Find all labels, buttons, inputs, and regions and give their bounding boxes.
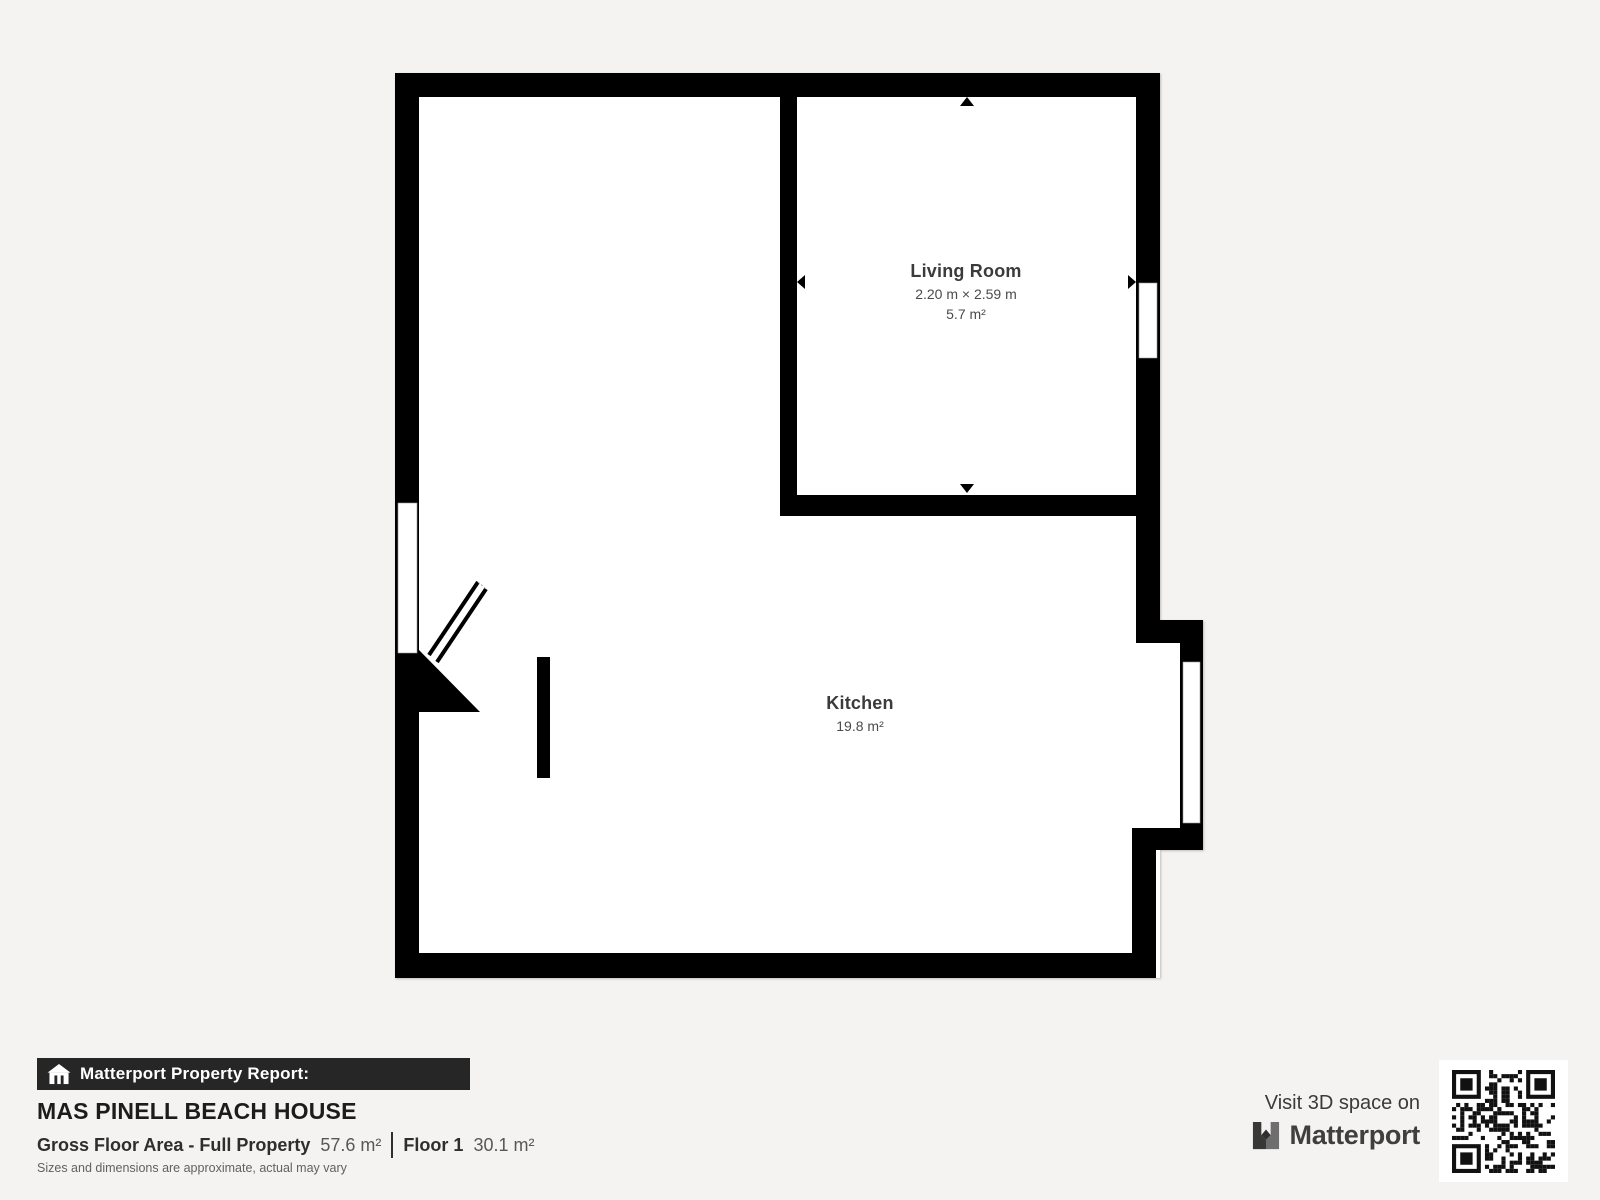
visit-text: Visit 3D space on [1240,1092,1420,1115]
gross-floor-value: 57.6 m² [320,1135,381,1156]
gross-floor-label: Gross Floor Area - Full Property [37,1135,310,1156]
report-header-text: Matterport Property Report: [80,1064,309,1084]
wall-kitchen-stub [537,657,550,778]
wall-living-room-bottom [780,495,1160,516]
qr-modules [1452,1070,1555,1173]
room-floor-fill [395,73,1203,978]
floor-label: Floor 1 [403,1135,463,1156]
disclaimer-text: Sizes and dimensions are approximate, ac… [37,1161,347,1175]
living-room-dimensions: 2.20 m × 2.59 m [910,286,1021,302]
property-title: MAS PINELL BEACH HOUSE [37,1098,357,1125]
kitchen-name: Kitchen [826,693,893,714]
kitchen-area: 19.8 m² [826,718,893,734]
room-label-kitchen: Kitchen 19.8 m² [826,693,893,734]
wall-top [395,73,1160,97]
living-room-name: Living Room [910,261,1021,282]
window-living-room [1139,283,1157,358]
floorplan-drawing [0,0,1600,1200]
window-left-wall [398,503,417,653]
report-header-bar: Matterport Property Report: [37,1058,470,1090]
floor-value: 30.1 m² [473,1135,534,1156]
wall-bottom [395,953,1156,978]
house-icon [47,1064,71,1085]
matterport-wordmark: Matterport [1290,1120,1421,1151]
matterport-logo-icon [1251,1122,1281,1150]
room-label-living-room: Living Room 2.20 m × 2.59 m 5.7 m² [910,261,1021,322]
wall-right-lower [1132,850,1156,978]
wall-bay-top [1136,620,1203,643]
visit-3d-space-cta: Visit 3D space on Matterport [1240,1092,1420,1151]
matterport-brand: Matterport [1240,1120,1420,1151]
floorplan-report-page: Living Room 2.20 m × 2.59 m 5.7 m² Kitch… [0,0,1600,1200]
stats-divider [391,1132,393,1158]
living-room-area: 5.7 m² [910,306,1021,322]
wall-living-room-left [780,97,797,516]
qr-code [1439,1060,1568,1182]
floor-area-stats: Gross Floor Area - Full Property 57.6 m²… [37,1132,534,1158]
wall-bay-bottom [1132,828,1203,850]
window-bay [1183,662,1200,823]
